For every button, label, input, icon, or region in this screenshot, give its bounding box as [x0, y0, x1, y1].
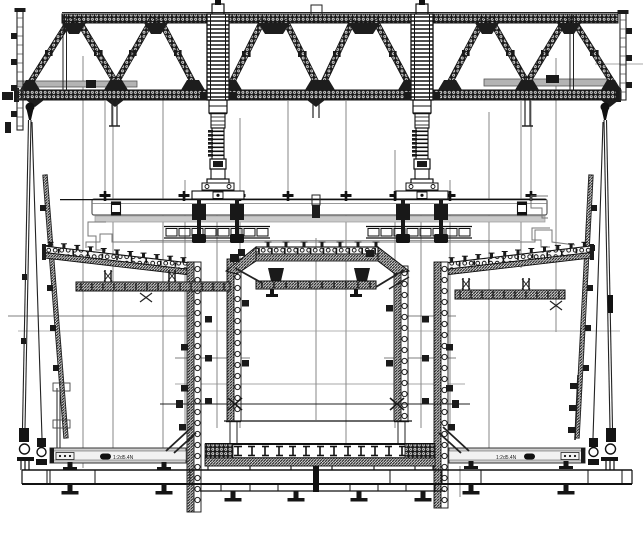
svg-text:1:2d5.4N: 1:2d5.4N [113, 455, 134, 461]
svg-text:1:2d5.4N: 1:2d5.4N [496, 455, 517, 461]
